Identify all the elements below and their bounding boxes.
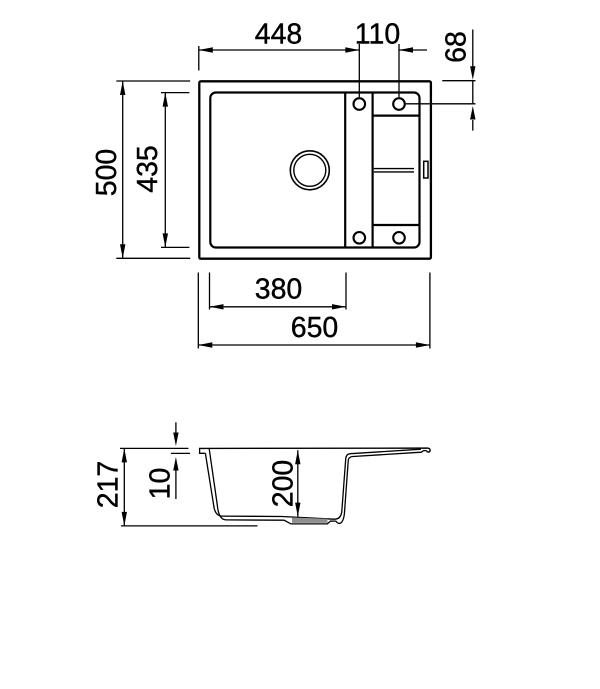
svg-text:68: 68	[441, 31, 473, 63]
svg-text:435: 435	[132, 145, 164, 193]
svg-text:380: 380	[255, 274, 303, 306]
svg-text:110: 110	[355, 19, 400, 51]
svg-text:448: 448	[255, 19, 303, 51]
svg-text:10: 10	[144, 468, 176, 500]
svg-text:650: 650	[291, 312, 339, 344]
svg-text:200: 200	[267, 460, 299, 508]
svg-text:500: 500	[91, 149, 123, 197]
svg-text:217: 217	[92, 461, 124, 509]
